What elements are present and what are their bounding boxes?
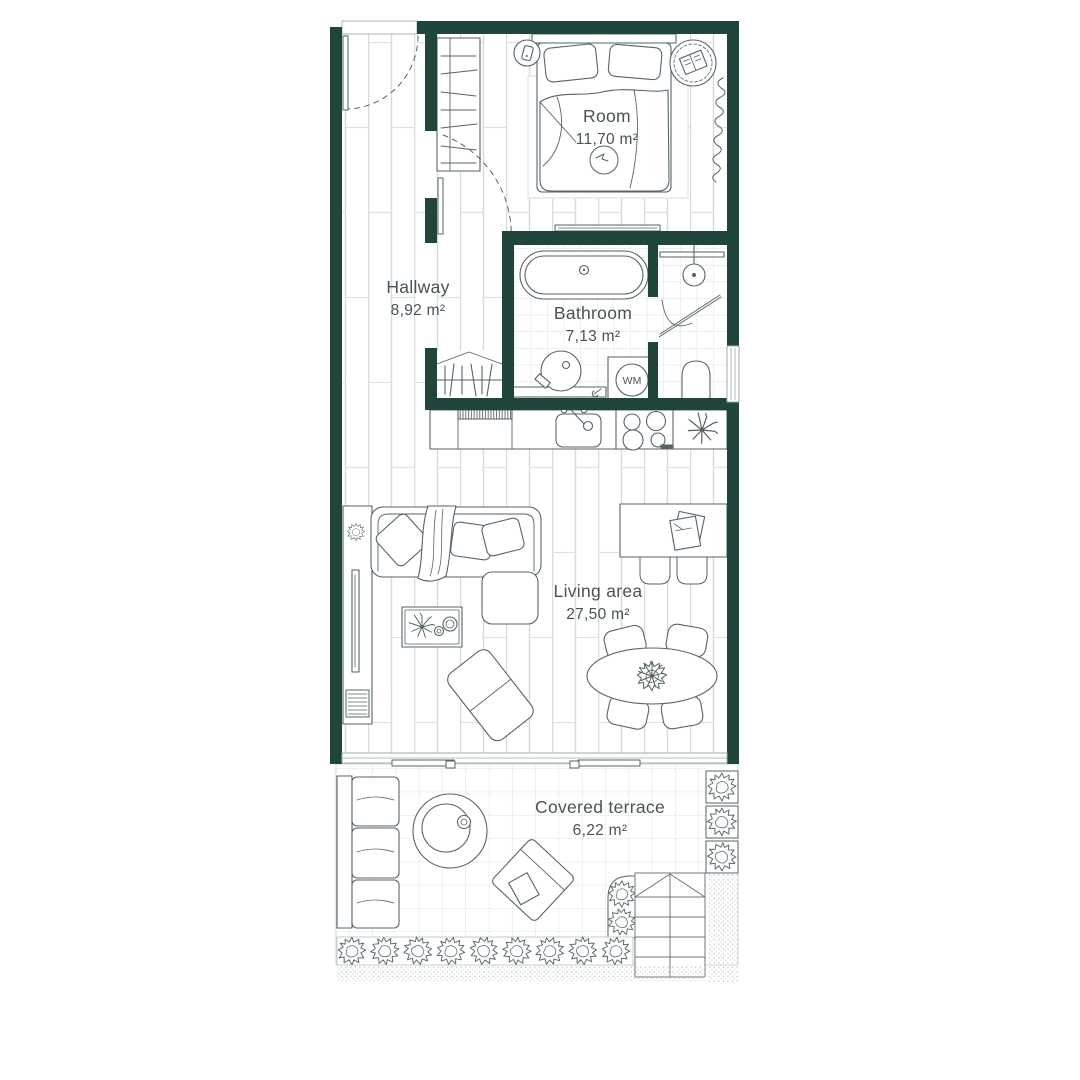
terrace-round-table (413, 794, 487, 868)
nightstand-left (514, 40, 540, 66)
stove (616, 410, 673, 450)
bathroom-area: 7,13 m² (554, 327, 632, 346)
coffee-table (402, 607, 462, 647)
living-radiator (346, 690, 369, 717)
bathroom-window (727, 346, 739, 402)
label-terrace: Covered terrace 6,22 m² (535, 797, 665, 840)
terrace-sofa (337, 776, 399, 928)
bedroom-radiator (555, 225, 660, 231)
label-living: Living area 27,50 m² (554, 581, 643, 624)
floor-plan-drawing: WM (0, 0, 1080, 1080)
bathroom-name: Bathroom (554, 303, 632, 325)
toilet (678, 361, 714, 400)
bedroom-area: 11,70 m² (576, 130, 638, 149)
terrace-name: Covered terrace (535, 797, 665, 819)
label-hallway: Hallway 8,92 m² (386, 277, 449, 320)
washing-machine-label: WM (623, 375, 642, 387)
terrace-hedge-row (337, 932, 633, 971)
hallway-area: 8,92 m² (386, 301, 449, 320)
living-name: Living area (554, 581, 643, 603)
label-bathroom: Bathroom 7,13 m² (554, 303, 632, 346)
bedroom-name: Room (576, 106, 638, 128)
nightstand-right (670, 40, 716, 86)
label-bedroom: Room 11,70 m² (576, 106, 638, 149)
bathtub (520, 251, 648, 299)
hallway-name: Hallway (386, 277, 449, 299)
wardrobe (437, 38, 480, 171)
floor-plan-canvas: WM (0, 0, 1080, 1080)
living-area: 27,50 m² (554, 605, 643, 624)
terrace-area: 6,22 m² (535, 821, 665, 840)
stairs (635, 873, 705, 977)
hallway-closet (437, 350, 502, 398)
